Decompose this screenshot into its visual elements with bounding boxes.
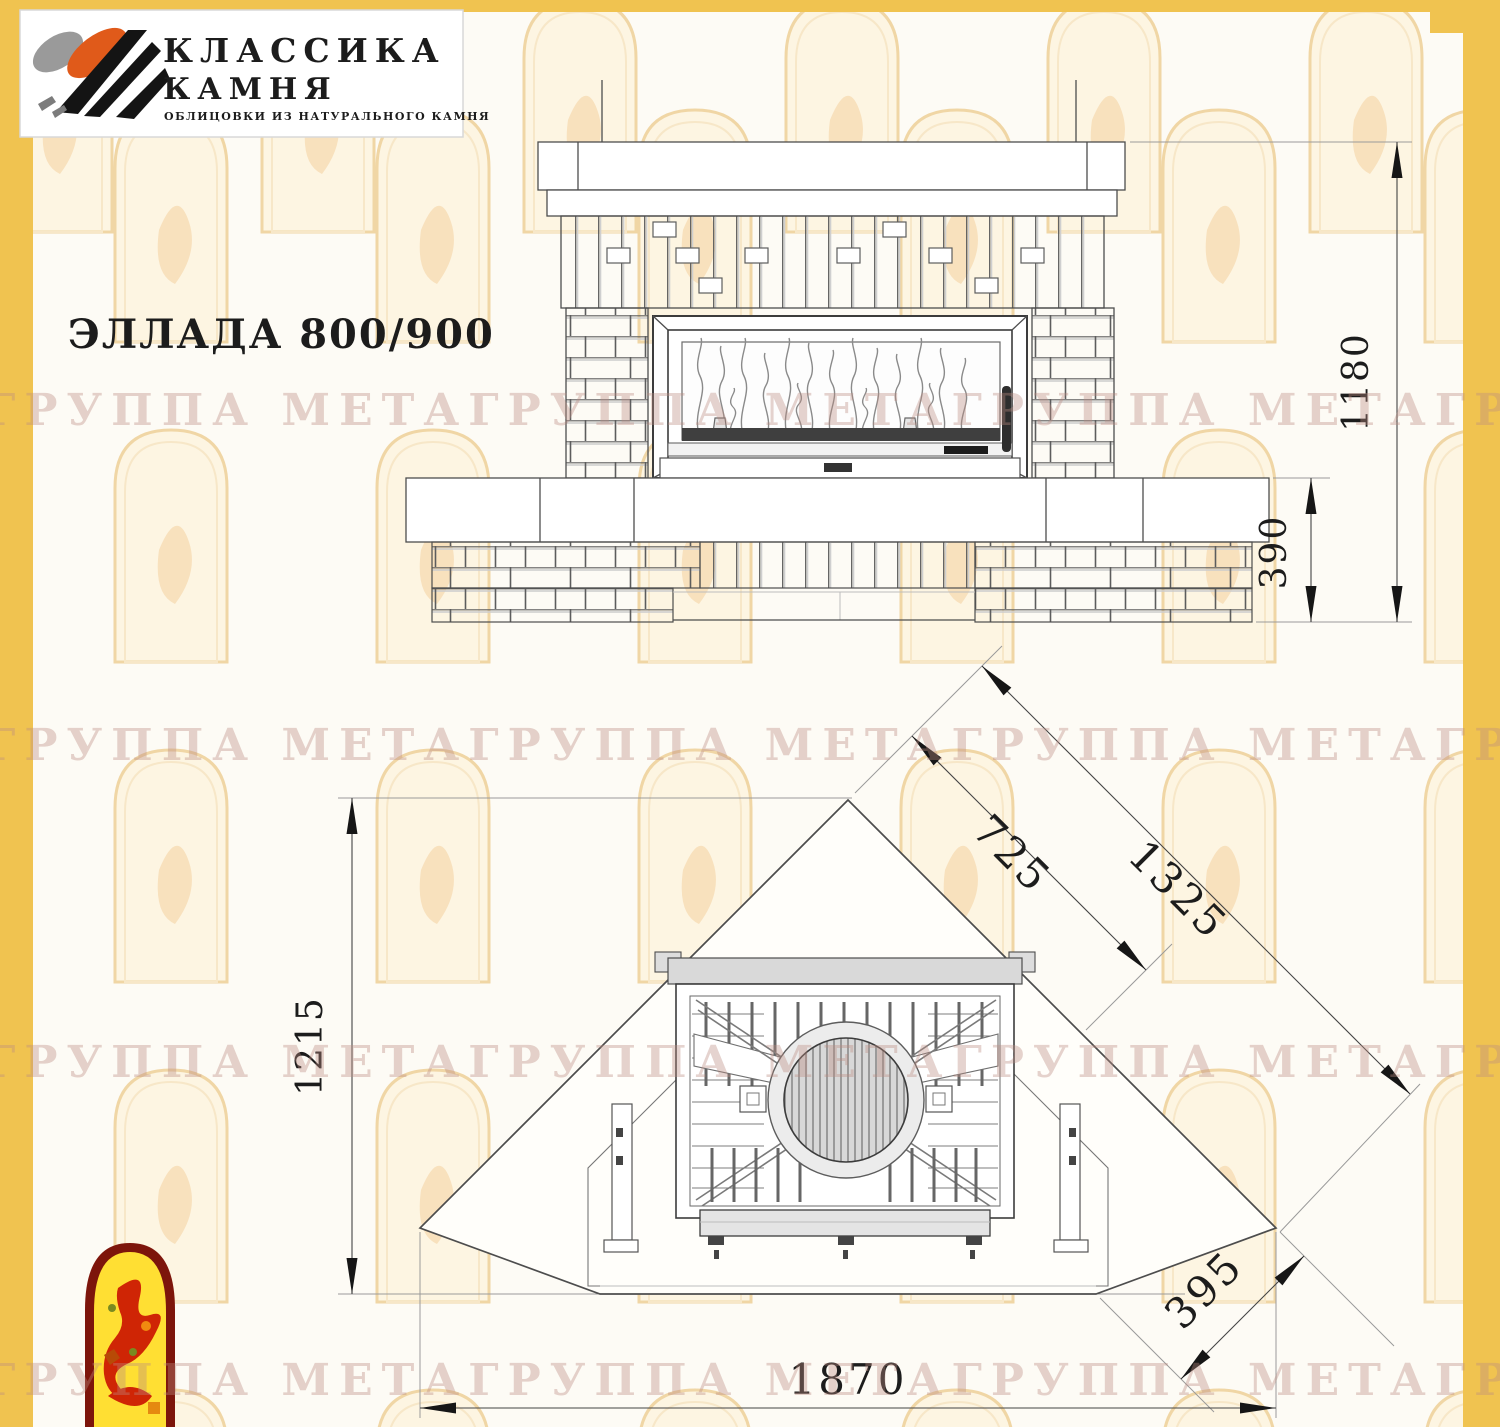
watermark-text-row: ГРУППА МЕТАГРУППА МЕТАГРУППА МЕТАГРУППА … [0,1037,1500,1088]
brand-logo-box: КЛАССИКА КАМНЯ ОБЛИЦОВКИ ИЗ НАТУРАЛЬНОГО… [20,10,490,137]
border-left [0,0,33,1427]
base-masonry [432,542,1252,622]
border-right [1463,0,1500,1427]
mantel-slab-lower [547,190,1117,216]
mantel-slab-top [538,142,1125,190]
drawing-sheet: КЛАССИКА КАМНЯ ОБЛИЦОВКИ ИЗ НАТУРАЛЬНОГО… [0,0,1500,1427]
ash-handle [824,463,852,472]
border-corner [1430,0,1500,33]
page-title: ЭЛЛАДА 800/900 [68,311,495,358]
brand-tagline: ОБЛИЦОВКИ ИЗ НАТУРАЛЬНОГО КАМНЯ [164,110,490,123]
brand-title-line1: КЛАССИКА [163,31,446,70]
watermark-text-row: ГРУППА МЕТАГРУППА МЕТАГРУППА МЕТАГРУППА … [0,1355,1500,1406]
hearth-slab [406,478,1269,542]
dim-label-base-height: 390 [1254,515,1295,590]
frieze-soldier-bricks [561,216,1104,308]
vent-slot [944,446,988,454]
brand-title-line2: КАМНЯ [163,72,338,107]
watermark-text-row: ГРУППА МЕТАГРУППА МЕТАГРУППА МЕТАГРУППА … [0,720,1500,771]
drawing-canvas: КЛАССИКА КАМНЯ ОБЛИЦОВКИ ИЗ НАТУРАЛЬНОГО… [0,0,1500,1427]
watermark-text-row: ГРУППА МЕТАГРУППА МЕТАГРУППА МЕТАГРУППА … [0,385,1500,436]
